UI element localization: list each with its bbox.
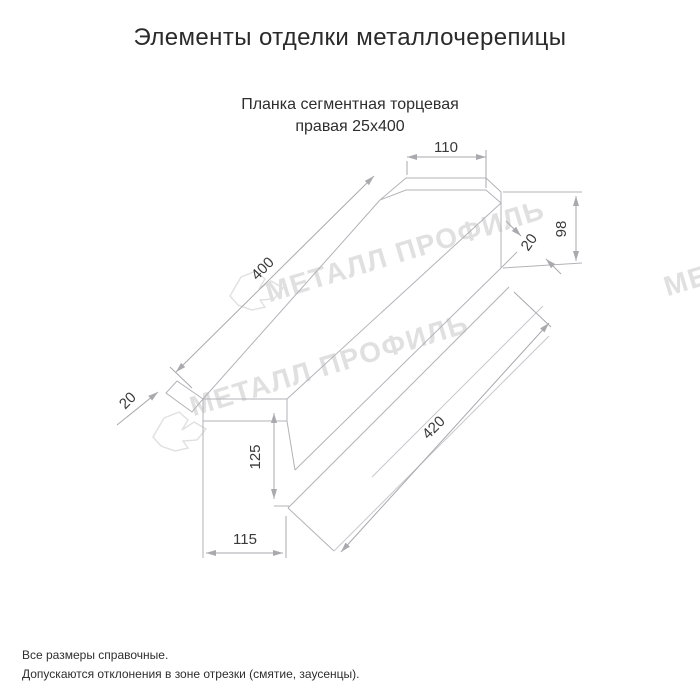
watermark-text-edge: МЕТАЛЛ ПРОФИЛЬ [660,188,700,302]
dim-label-20-right: 20 [518,231,541,254]
footer-notes: Все размеры справочные. Допускаются откл… [22,646,359,683]
dim-label-115: 115 [233,531,257,548]
footer-note-1: Все размеры справочные. [22,646,359,665]
technical-drawing: МЕТАЛЛ ПРОФИЛЬ МЕТАЛЛ ПРОФИЛЬ МЕТАЛЛ ПРО… [0,0,700,700]
dim-label-98: 98 [553,221,570,238]
watermark-text-lower: МЕТАЛЛ ПРОФИЛЬ [186,308,472,422]
dim-label-110: 110 [434,139,458,156]
watermark-layer: МЕТАЛЛ ПРОФИЛЬ МЕТАЛЛ ПРОФИЛЬ МЕТАЛЛ ПРО… [153,188,700,451]
footer-note-2: Допускаются отклонения в зоне отрезки (с… [22,665,359,684]
dim-label-125: 125 [247,444,264,469]
drawing-page: Элементы отделки металлочерепицы Планка … [0,0,700,700]
